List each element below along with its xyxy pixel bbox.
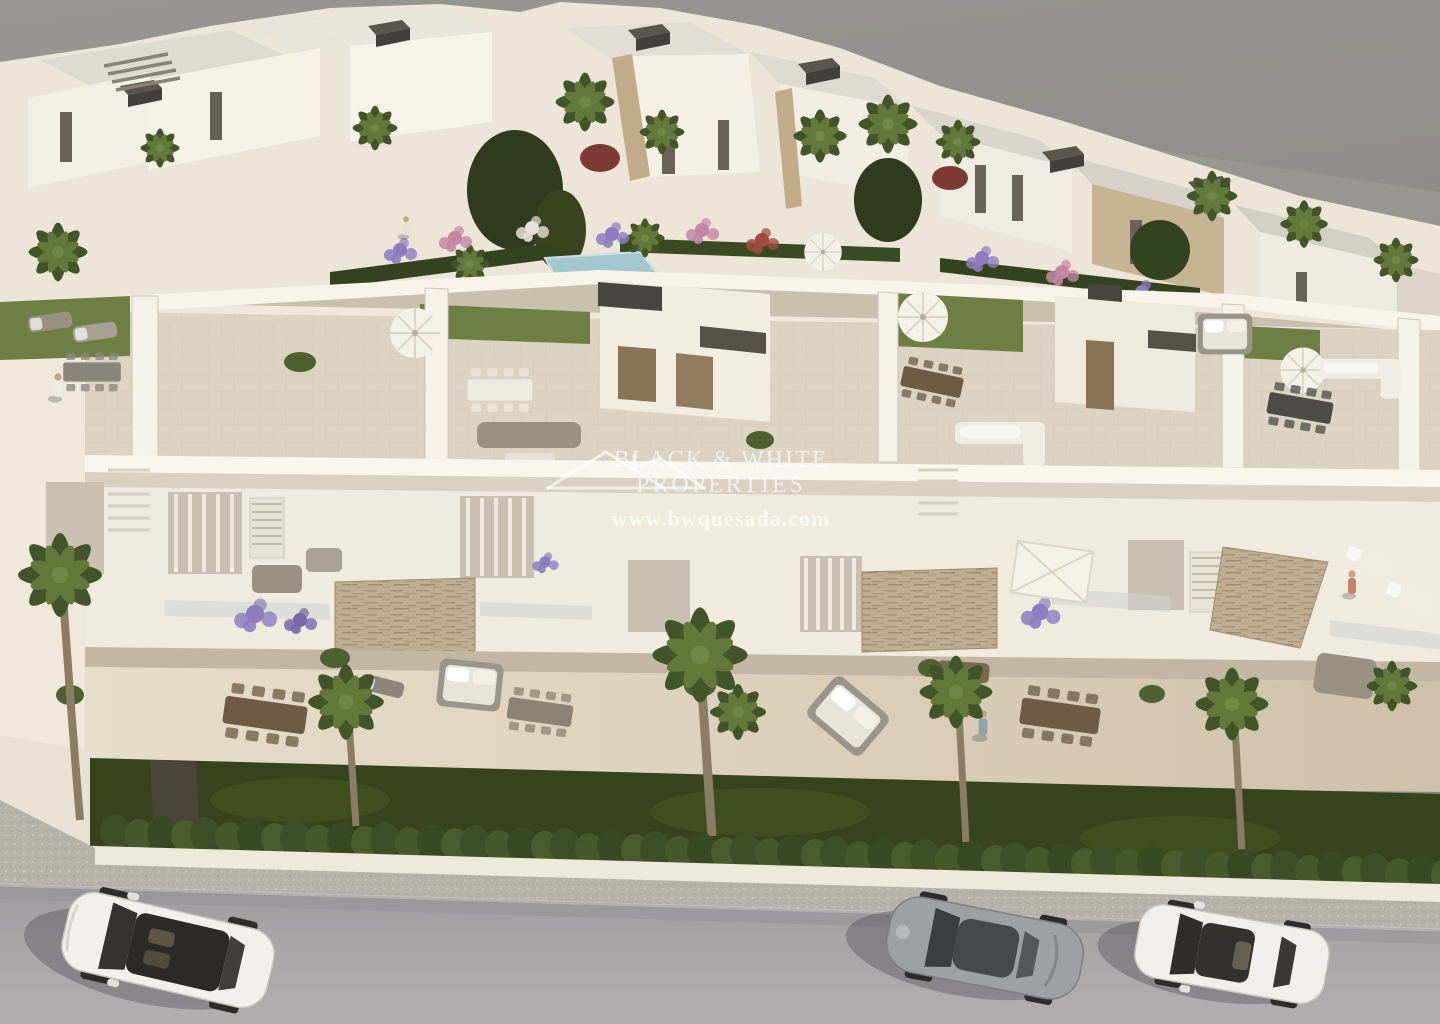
roof-planter: [746, 431, 774, 449]
roof-parasol: [1281, 348, 1326, 393]
balcony-sofa: [306, 548, 342, 572]
entrance-door: [618, 346, 656, 402]
entrance-door: [1086, 340, 1114, 410]
stair-tower-center: [598, 280, 770, 422]
rooftop-solarium-level: [0, 270, 1440, 472]
balcony-square-parasol: [1011, 541, 1093, 603]
terrace-sofa: [1312, 652, 1377, 700]
roof-parasol: [390, 308, 440, 358]
roof-daybed: [1198, 314, 1252, 355]
garden-parasol: [804, 233, 842, 271]
entrance-door: [676, 353, 713, 410]
balcony-sofa: [252, 565, 302, 593]
roof-sofa: [477, 422, 581, 448]
scene-render: [0, 0, 1440, 1024]
terrace-daybed: [436, 658, 505, 712]
render-canvas: BLACK & WHITE PROPERTIES www.bwquesada.c…: [0, 0, 1440, 1024]
roof-planter: [284, 352, 316, 372]
balcony-level: [46, 455, 1440, 662]
roof-parasol: [898, 292, 948, 342]
